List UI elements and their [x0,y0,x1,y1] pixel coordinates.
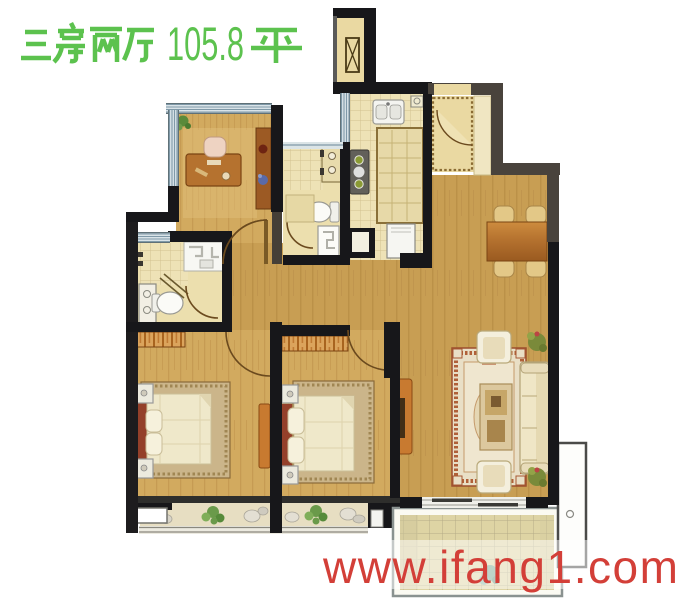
svg-text:105.8: 105.8 [167,17,244,70]
svg-text:www.ifang1.com: www.ifang1.com [322,541,678,593]
